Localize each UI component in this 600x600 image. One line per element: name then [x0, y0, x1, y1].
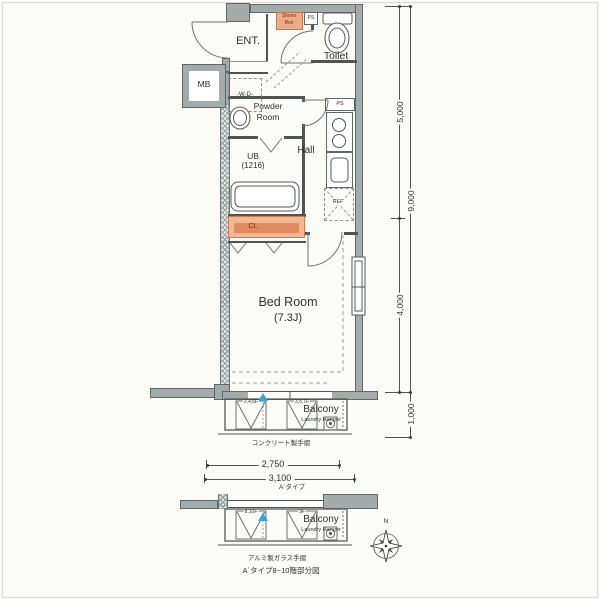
dim-dot	[409, 5, 412, 8]
dim-dot	[398, 5, 401, 8]
room-label-ub-2: (1216)	[241, 162, 264, 170]
refrigerator-label: REF	[332, 200, 344, 205]
room-label-powder-1: Powder	[254, 102, 283, 111]
genkan-step-line	[228, 61, 268, 62]
balcony-main-label: Balcony	[303, 405, 339, 415]
dim-dot	[338, 464, 341, 467]
dim-tick-bottom	[385, 437, 412, 438]
dim-label-3100: 3,100	[266, 474, 295, 483]
dim-label-2750: 2,750	[259, 460, 288, 469]
bedroom-door-arc	[308, 232, 342, 266]
floor-plan-page: ENT. Shoes Box PS Toilet MB -W-D- Powder…	[0, 0, 600, 600]
partition-ent-south	[228, 72, 268, 74]
laundry-hanger-main-label: Laundry Hanger	[301, 418, 340, 424]
room-label-ub-1: UB	[247, 152, 259, 161]
partition-ub-north-b	[284, 136, 304, 139]
ub-folding-door	[260, 138, 282, 152]
detail-wall-left	[180, 500, 218, 509]
dim-label-5000: 5,000	[396, 99, 405, 124]
hatch-floors-label-left: 2,4,6F	[243, 400, 259, 405]
dim-dot	[204, 478, 207, 481]
dim-line-inner-v	[399, 6, 400, 392]
dim-dot	[353, 478, 356, 481]
dim-label-9000: 9,000	[407, 188, 416, 213]
balcony-detail-label: Balcony	[303, 515, 339, 525]
room-label-mb: MB	[198, 80, 211, 89]
dim-dot	[398, 391, 401, 394]
dim-dot	[398, 217, 401, 220]
room-label-bedroom-2: (7.3J)	[274, 313, 302, 324]
toilet-door-arc	[281, 31, 313, 63]
section-marker-triangle-detail	[258, 513, 268, 521]
room-label-bedroom-1: Bed Room	[258, 296, 317, 309]
kitchen-counter-unit	[326, 152, 353, 188]
wall-south-neighbour	[150, 388, 224, 398]
closet-hanger-marks	[230, 243, 282, 253]
detail-hatch-label-left: 8,10F	[244, 510, 259, 515]
room-label-toilet: Toilet	[324, 51, 349, 62]
corridor-dashes	[266, 52, 308, 88]
laundry-hanger-detail-label: Laundry Hanger	[301, 528, 340, 534]
type-label: A´タイプ	[279, 485, 305, 492]
detail-wall-right	[323, 494, 378, 509]
kitchen-stove-unit	[326, 112, 353, 152]
room-label-hall: Hall	[297, 146, 314, 156]
partition-hall-west-a	[302, 96, 305, 102]
handrail-note-detail: アルミ製ガラス手摺	[248, 556, 306, 563]
bedroom-dashed-lines	[232, 236, 343, 383]
wall-west-hatched	[220, 104, 230, 400]
partition-ub-north-a	[228, 136, 258, 139]
dim-dot	[409, 436, 412, 439]
bathtub	[231, 182, 299, 211]
wall-entrance-hinge-block	[226, 3, 250, 22]
partition-ent-east	[266, 14, 268, 61]
shoes-box-label-1: Shoes	[282, 14, 296, 19]
wall-south-right	[330, 391, 378, 400]
closet-label: CL	[248, 222, 258, 230]
toilet-fixture	[323, 13, 352, 53]
dim-label-1000: 1,000	[407, 401, 416, 426]
ps-entry-label: PS	[308, 16, 315, 21]
dim-label-4000: 4,000	[396, 292, 405, 317]
washer-dryer-label: -W-D-	[237, 92, 253, 98]
partition-bedroom-north-b	[344, 232, 358, 235]
compass-rose	[370, 530, 402, 562]
entrance-door-arc	[192, 22, 228, 58]
room-label-ent: ENT.	[236, 36, 260, 47]
detail-caption: A´タイプ8~10階部分図	[243, 567, 320, 575]
room-label-powder-2: Room	[257, 113, 280, 122]
dim-dot	[206, 464, 209, 467]
partition-cl-south	[228, 241, 306, 243]
wall-east	[355, 4, 363, 400]
balcony-sliding-window	[248, 391, 332, 400]
ps-hall-label: PS	[336, 102, 343, 108]
handrail-note-main: コンクリート製手摺	[252, 441, 311, 448]
closet-inner-band	[234, 223, 299, 233]
shoes-box-label-2: Box	[285, 21, 294, 26]
detail-sliding-window	[228, 500, 323, 508]
compass-north-label: N	[384, 519, 389, 526]
dim-dot	[409, 391, 412, 394]
dim-line-outer-v	[410, 6, 411, 437]
detail-wall-hatched	[218, 494, 228, 509]
